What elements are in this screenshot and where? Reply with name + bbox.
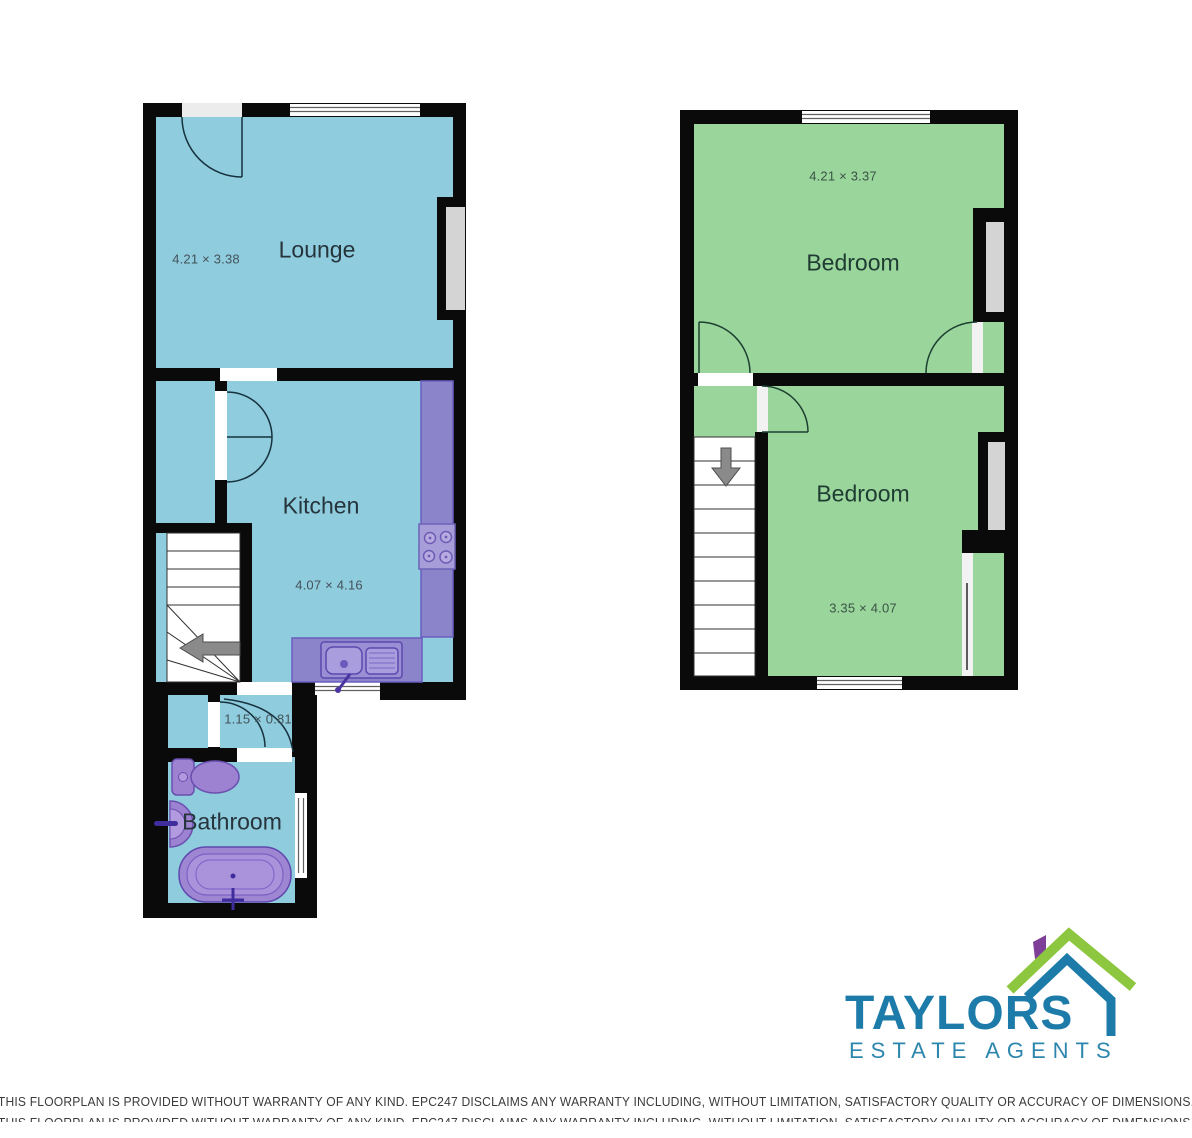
agency-tagline: ESTATE AGENTS [849, 1038, 1118, 1064]
hob-icon [419, 524, 455, 569]
kitchen-label: Kitchen [283, 493, 360, 520]
kitchen-door-opening [215, 391, 227, 480]
bathroom-window [295, 793, 307, 878]
bedroom-front-dimensions: 4.21 × 3.37 [809, 169, 877, 184]
entrance-door-opening [182, 103, 242, 117]
bedroom-front-second-door-opening [972, 322, 983, 373]
bedroom-back-side-window [962, 553, 973, 676]
kitchen-window [315, 682, 380, 695]
bedroom-back-window [817, 677, 902, 689]
floorplan-page: Lounge 4.21 × 3.38 Kitchen 4.07 × 4.16 1… [0, 0, 1192, 1138]
kitchen-hall-opening [237, 682, 292, 695]
first-floor-stairs [694, 437, 755, 676]
disclaimer-text-clipped: THIS FLOORPLAN IS PROVIDED WITHOUT WARRA… [0, 1115, 1192, 1122]
ground-floor-stairs [167, 533, 240, 682]
bedroom-front-label: Bedroom [806, 250, 899, 277]
lounge-label: Lounge [279, 237, 356, 264]
hallway-door-opening [208, 702, 220, 747]
agency-brand-name: TAYLORS [845, 986, 1073, 1041]
lounge-window [290, 104, 420, 116]
bedroom-front-chimney-recess [986, 222, 1004, 312]
bathtub-icon [179, 847, 291, 910]
lounge-kitchen-opening [220, 368, 277, 381]
floorplan-canvas [0, 0, 1192, 1138]
toilet-icon [172, 759, 239, 795]
lounge-dimensions: 4.21 × 3.38 [172, 252, 240, 267]
bedroom-back-label: Bedroom [816, 481, 909, 508]
bedroom-front-door-opening [698, 373, 753, 386]
hallway-dimensions: 1.15 × 0.81 [224, 712, 292, 727]
kitchen-dimensions: 4.07 × 4.16 [295, 578, 363, 593]
bedroom-back-closet-recess [988, 442, 1005, 530]
bedroom-back-dimensions: 3.35 × 4.07 [829, 601, 897, 616]
disclaimer-text-repeat: THIS FLOORPLAN IS PROVIDED WITHOUT WARRA… [0, 1115, 1192, 1122]
bathroom-door-opening [237, 748, 292, 762]
lounge-chimney-recess [446, 207, 465, 310]
bathroom-label: Bathroom [182, 809, 282, 836]
bedroom-front-window [802, 111, 930, 123]
bedroom-back-door-opening [757, 386, 768, 432]
disclaimer-text: THIS FLOORPLAN IS PROVIDED WITHOUT WARRA… [0, 1094, 1192, 1109]
